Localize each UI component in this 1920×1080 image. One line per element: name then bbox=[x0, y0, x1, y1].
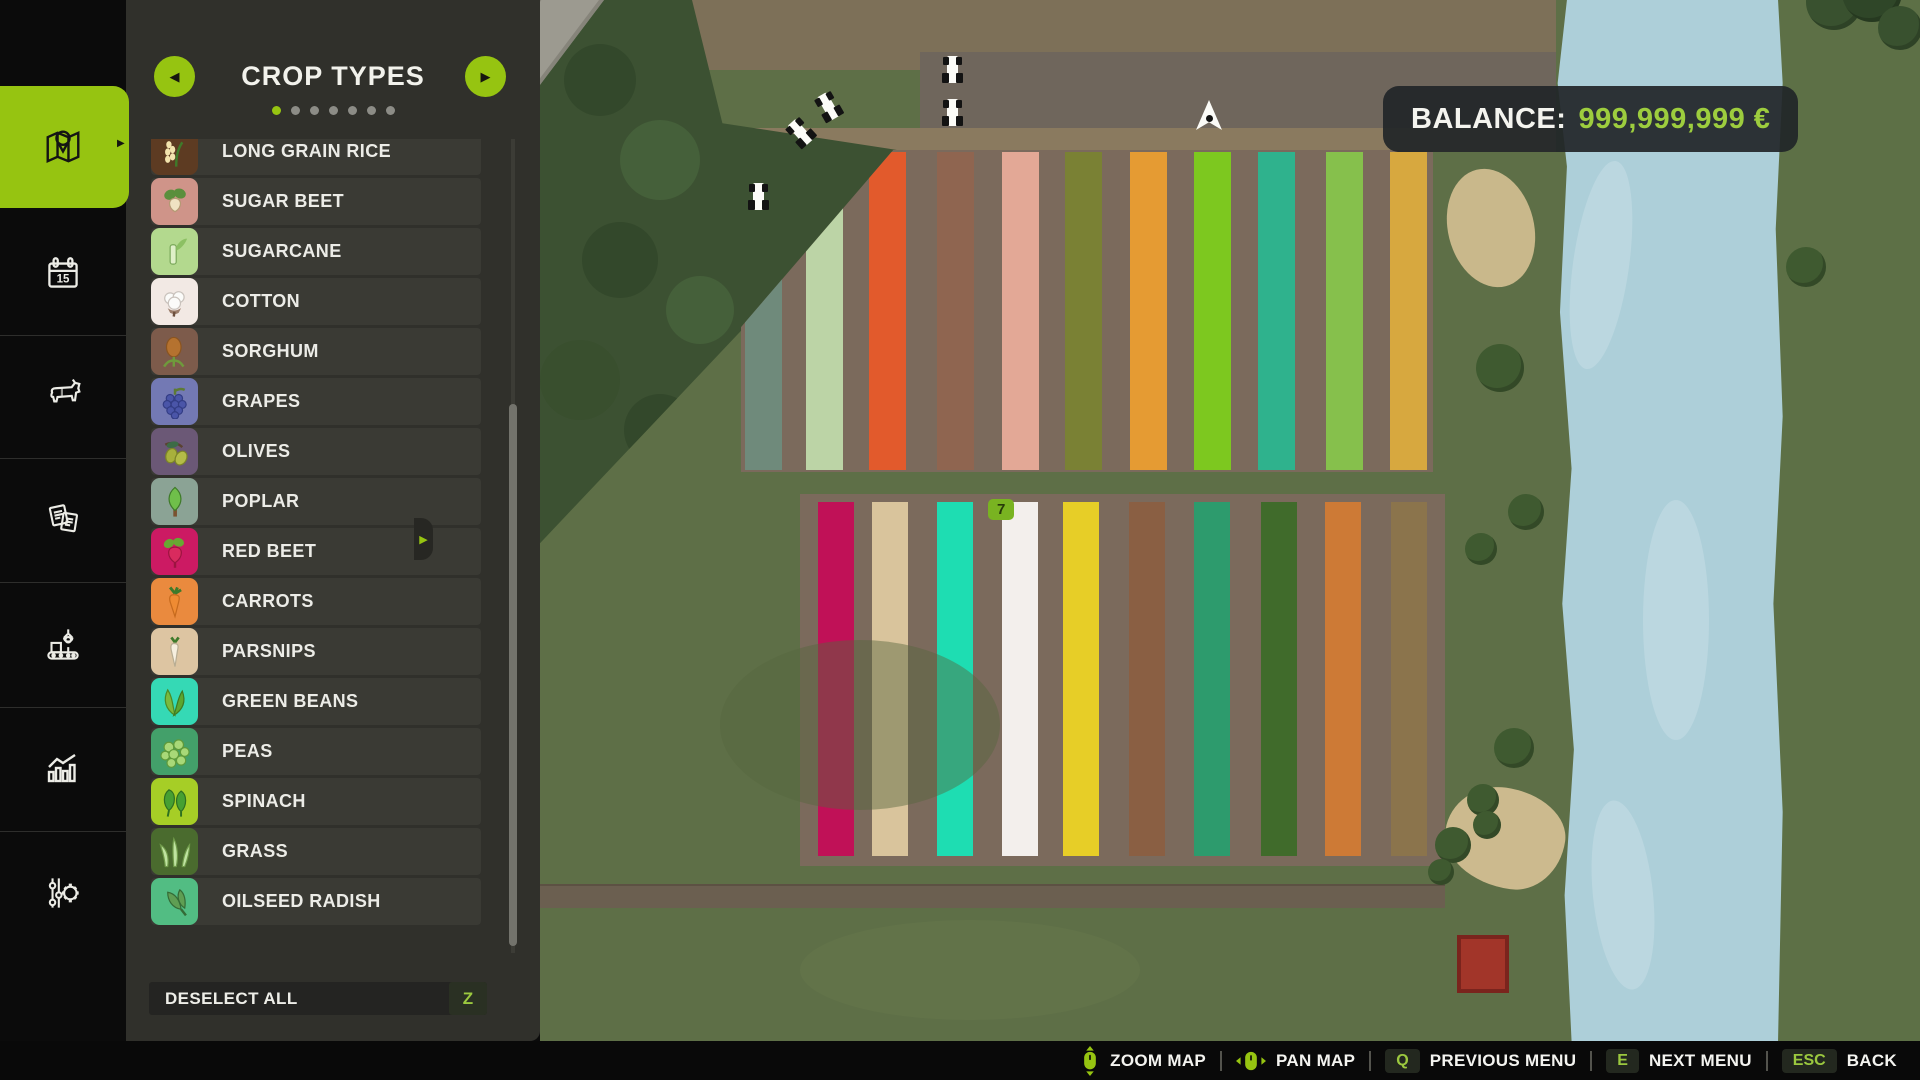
balance-label: BALANCE: bbox=[1411, 103, 1566, 136]
chevron-right-icon: ▶ bbox=[117, 138, 125, 149]
control-label: PREVIOUS MENU bbox=[1430, 1051, 1577, 1071]
crop-strip bbox=[937, 152, 974, 470]
balance-display: BALANCE: 999,999,999 € bbox=[1383, 86, 1798, 152]
sidebar-divider bbox=[0, 335, 126, 336]
bottom-bar: ZOOM MAPPAN MAPQPREVIOUS MENUENEXT MENUE… bbox=[0, 1041, 1920, 1080]
carrot-icon bbox=[151, 578, 198, 625]
page-dot-3[interactable] bbox=[329, 106, 338, 115]
crop-label: PARSNIPS bbox=[222, 641, 316, 662]
crop-row-sugar-beet[interactable]: SUGAR BEET bbox=[151, 178, 481, 225]
tree bbox=[1465, 533, 1497, 565]
sorghum-icon bbox=[151, 328, 198, 375]
mouse-zoom-icon bbox=[1080, 1046, 1100, 1076]
control-hint-previous-menu[interactable]: QPREVIOUS MENU bbox=[1385, 1049, 1576, 1073]
cotton-icon bbox=[151, 278, 198, 325]
crop-strip bbox=[1130, 152, 1167, 470]
crop-label: OLIVES bbox=[222, 441, 290, 462]
documents-icon bbox=[40, 497, 86, 543]
settings-gear-icon bbox=[40, 870, 86, 916]
rice-icon bbox=[151, 139, 198, 175]
crop-strip bbox=[1065, 152, 1102, 470]
crop-row-grass[interactable]: GRASS bbox=[151, 828, 481, 875]
crop-strip bbox=[1261, 502, 1297, 856]
crop-label: GRAPES bbox=[222, 391, 300, 412]
olives-icon bbox=[151, 428, 198, 475]
grass-patch bbox=[720, 640, 1000, 810]
crop-label: SUGAR BEET bbox=[222, 191, 344, 212]
beans-icon bbox=[151, 678, 198, 725]
sidebar-item-contracts[interactable] bbox=[0, 470, 126, 570]
river-streak bbox=[1643, 500, 1709, 740]
dirt-road-bottom bbox=[540, 884, 1445, 908]
app-root: 7 BALANCE: 999,999,999 € ▶ bbox=[0, 0, 1920, 1080]
page-dot-0[interactable] bbox=[272, 106, 281, 115]
tree bbox=[620, 120, 700, 200]
bar-chart-icon bbox=[41, 748, 85, 792]
crop-strip bbox=[869, 152, 906, 470]
spinach-icon bbox=[151, 778, 198, 825]
mouse-pan-icon bbox=[1236, 1049, 1266, 1073]
page-dots bbox=[126, 102, 540, 120]
control-label: ZOOM MAP bbox=[1110, 1051, 1206, 1071]
key-z: Z bbox=[449, 982, 487, 1015]
river-streak bbox=[1583, 797, 1663, 992]
sidebar-item-production[interactable] bbox=[0, 595, 126, 695]
grass-icon bbox=[151, 828, 198, 875]
crop-strip bbox=[1390, 152, 1427, 470]
sidebar-divider bbox=[0, 831, 126, 832]
radish-icon bbox=[151, 878, 198, 925]
crop-label: RED BEET bbox=[222, 541, 316, 562]
crop-label: LONG GRAIN RICE bbox=[222, 141, 391, 162]
tree bbox=[1878, 6, 1920, 50]
sugarcane-icon bbox=[151, 228, 198, 275]
poplar-icon bbox=[151, 478, 198, 525]
scrollbar-thumb[interactable] bbox=[509, 404, 517, 946]
separator bbox=[1766, 1051, 1768, 1071]
sugarbeet-icon bbox=[151, 178, 198, 225]
cow-icon bbox=[39, 373, 87, 421]
sidebar-divider bbox=[0, 458, 126, 459]
crop-label: SORGHUM bbox=[222, 341, 319, 362]
control-hint-pan-map[interactable]: PAN MAP bbox=[1236, 1049, 1355, 1073]
crop-row-olives[interactable]: OLIVES bbox=[151, 428, 481, 475]
tree bbox=[1786, 247, 1826, 287]
crop-label: SPINACH bbox=[222, 791, 306, 812]
panel-collapse-handle[interactable]: ▶ bbox=[414, 518, 433, 560]
balance-value: 999,999,999 € bbox=[1578, 103, 1770, 136]
tree bbox=[1476, 344, 1524, 392]
page-dot-1[interactable] bbox=[291, 106, 300, 115]
page-dot-4[interactable] bbox=[348, 106, 357, 115]
crop-row-spinach[interactable]: SPINACH bbox=[151, 778, 481, 825]
crop-row-peas[interactable]: PEAS bbox=[151, 728, 481, 775]
tree bbox=[564, 44, 636, 116]
panel-title: CROP TYPES bbox=[126, 56, 540, 97]
crop-label: OILSEED RADISH bbox=[222, 891, 381, 912]
sidebar-item-statistics[interactable] bbox=[0, 720, 126, 820]
crop-strip bbox=[1325, 502, 1361, 856]
tree bbox=[540, 340, 620, 420]
production-conveyor-icon bbox=[40, 622, 86, 668]
crop-row-carrots[interactable]: CARROTS bbox=[151, 578, 481, 625]
tree bbox=[1508, 494, 1544, 530]
key-esc: ESC bbox=[1782, 1049, 1837, 1073]
sidebar-divider bbox=[0, 707, 126, 708]
control-hint-next-menu[interactable]: ENEXT MENU bbox=[1606, 1049, 1752, 1073]
peas-icon bbox=[151, 728, 198, 775]
crop-row-poplar[interactable]: POPLAR bbox=[151, 478, 481, 525]
world-map[interactable]: 7 bbox=[540, 0, 1920, 1041]
control-hint-zoom-map[interactable]: ZOOM MAP bbox=[1080, 1046, 1206, 1076]
crop-label: COTTON bbox=[222, 291, 300, 312]
crop-label: PEAS bbox=[222, 741, 273, 762]
tree bbox=[666, 276, 734, 344]
crop-strip bbox=[1063, 502, 1099, 856]
page-dot-2[interactable] bbox=[310, 106, 319, 115]
separator bbox=[1369, 1051, 1371, 1071]
bush bbox=[1435, 827, 1471, 863]
crop-row-sugarcane[interactable]: SUGARCANE bbox=[151, 228, 481, 275]
river-streak bbox=[1559, 157, 1644, 373]
crop-row-green-beans[interactable]: GREEN BEANS bbox=[151, 678, 481, 725]
sidebar-item-animals[interactable] bbox=[0, 347, 126, 447]
bush bbox=[1473, 811, 1501, 839]
deselect-all-button[interactable]: DESELECT ALL Z bbox=[149, 982, 487, 1015]
crop-strip bbox=[1326, 152, 1363, 470]
crop-types-panel: ◀ ▶ CROP TYPES LONG GRAIN RICESUGAR BEET… bbox=[126, 0, 540, 1041]
crop-strip bbox=[1194, 502, 1230, 856]
calendar-icon: 15 bbox=[40, 251, 86, 297]
crop-label: POPLAR bbox=[222, 491, 299, 512]
deselect-all-label: DESELECT ALL bbox=[165, 989, 298, 1009]
crop-label: CARROTS bbox=[222, 591, 314, 612]
page-dot-6[interactable] bbox=[386, 106, 395, 115]
key-e: E bbox=[1606, 1049, 1639, 1073]
crop-strip bbox=[1129, 502, 1165, 856]
svg-text:15: 15 bbox=[57, 273, 70, 285]
control-label: NEXT MENU bbox=[1649, 1051, 1752, 1071]
separator bbox=[1220, 1051, 1222, 1071]
crop-strip bbox=[1194, 152, 1231, 470]
parsnip-icon bbox=[151, 628, 198, 675]
crop-row-oilseed-radish[interactable]: OILSEED RADISH bbox=[151, 878, 481, 925]
crop-strip bbox=[1002, 502, 1038, 856]
sidebar: ▶ 15 bbox=[0, 0, 126, 1080]
crop-row-sorghum[interactable]: SORGHUM bbox=[151, 328, 481, 375]
crop-row-cotton[interactable]: COTTON bbox=[151, 278, 481, 325]
map-icon bbox=[39, 123, 87, 171]
redbeet-icon bbox=[151, 528, 198, 575]
grapes-icon bbox=[151, 378, 198, 425]
control-label: BACK bbox=[1847, 1051, 1897, 1071]
page-dot-5[interactable] bbox=[367, 106, 376, 115]
separator bbox=[1590, 1051, 1592, 1071]
control-label: PAN MAP bbox=[1276, 1051, 1355, 1071]
crop-row-long-grain-rice[interactable]: LONG GRAIN RICE bbox=[151, 139, 481, 175]
tree bbox=[1494, 728, 1534, 768]
sand-patch bbox=[1435, 159, 1547, 296]
crop-strip bbox=[1258, 152, 1295, 470]
sidebar-item-calendar[interactable]: 15 bbox=[0, 224, 126, 324]
crop-row-parsnips[interactable]: PARSNIPS bbox=[151, 628, 481, 675]
crop-label: SUGARCANE bbox=[222, 241, 342, 262]
grass-patch bbox=[800, 920, 1140, 1020]
sidebar-divider bbox=[0, 582, 126, 583]
bottom-bar-items: ZOOM MAPPAN MAPQPREVIOUS MENUENEXT MENUE… bbox=[1073, 1046, 1904, 1076]
river bbox=[1553, 0, 1785, 1041]
crop-strip bbox=[1391, 502, 1427, 856]
key-q: Q bbox=[1385, 1049, 1419, 1073]
control-hint-back[interactable]: ESCBACK bbox=[1782, 1049, 1897, 1073]
field-number-badge[interactable]: 7 bbox=[988, 499, 1014, 520]
tree bbox=[624, 394, 696, 466]
crop-label: GRASS bbox=[222, 841, 288, 862]
sidebar-item-map[interactable] bbox=[0, 97, 126, 197]
bush bbox=[1428, 859, 1454, 885]
crop-label: GREEN BEANS bbox=[222, 691, 358, 712]
red-roof-building bbox=[1457, 935, 1509, 993]
crop-strip bbox=[1002, 152, 1039, 470]
tree bbox=[582, 222, 658, 298]
crop-row-grapes[interactable]: GRAPES bbox=[151, 378, 481, 425]
sidebar-item-settings[interactable] bbox=[0, 843, 126, 943]
